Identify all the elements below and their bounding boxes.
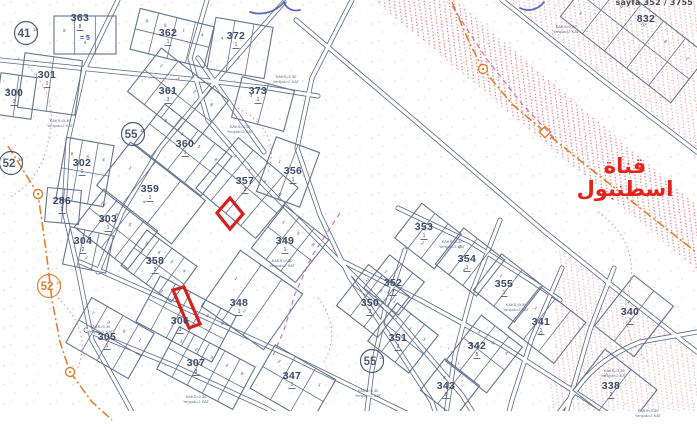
boundary-node-dot [482,68,484,70]
parcel-label-300: 300 [5,87,23,99]
parcel-sublot: 1 [292,177,295,183]
grid-marker-superscript: 10 [379,355,385,360]
zoning-note: KAKS=0.30Yençok=2 KAT [553,24,580,34]
parcel-sublot: 1 [291,382,294,388]
parcel-label-356: 356 [284,165,302,177]
zoning-note: KAKS=0.30Yençok=2 KAT [183,394,210,404]
parcel-label-362: 362 [159,27,177,39]
parcel-sublot: 1 [46,81,49,87]
parcel-label-372: 372 [227,30,245,42]
parcel-sublot: 3 [154,267,157,273]
parcel-label-307: 307 [187,357,205,369]
parcel-sublot: 2 [369,309,372,315]
parcel-sublot: 1 [235,42,238,48]
ink-annotation: = 5 [80,35,90,42]
parcel-label-286: 286 [53,195,71,207]
parcel-label-354: 354 [458,253,476,265]
parcel-sublot: 1 [149,195,152,201]
cadastral-map-page: 8465144211328133158864114148532563473612… [0,0,697,427]
parcel-label-348: 348 [230,297,248,309]
parcel-label-302: 302 [73,157,91,169]
parcel-sublot: 1 [184,150,187,156]
parcel-label-359: 359 [141,183,159,195]
parcel-sublot: 2 [82,247,85,253]
parcel-sublot: 1 [629,318,632,324]
boundary-node-dot [69,371,71,373]
zoning-note: KAKS=0.30Yençok=2 KAT [87,324,114,334]
parcel-sublot: 1 [423,233,426,239]
parcel-label-358: 358 [146,255,164,267]
parcel-label-352: 352 [384,277,402,289]
zoning-note: KAKS=0.30Yençok=2 KAT [269,258,296,268]
parcel-sublot: 2 [244,187,247,193]
parcel-sublot: 1 [466,265,469,271]
grid-marker-superscript: 10 [33,27,39,32]
parcel-label-343: 343 [437,380,455,392]
parcel-sublot: 8 [79,24,82,30]
parcel-sublot: 1 [107,225,110,231]
grid-marker-55: 55 [125,129,138,141]
parcel-label-355: 355 [495,278,513,290]
canal-name-label: قناة اسطنبول [552,155,697,201]
zoning-note: KAKS=0.30Yençok=2 KAT [439,239,466,249]
parcel-sublot: 3 [167,97,170,103]
parcel-label-363: 363 [71,12,89,24]
parcel-sublot: 1 [106,343,109,349]
parcel-label-347: 347 [283,370,301,382]
parcel-sublot: 2 [397,344,400,350]
parcel-sublot: 3 [13,99,16,105]
zoning-note: KAKS=0.30Yençok=2 KAT [227,124,254,134]
zoning-note: KAKS=0.30Yençok=2 KAT [355,388,382,398]
parcel-label-351: 351 [389,332,407,344]
grid-marker-55: 55 [364,356,377,368]
zoning-note: KAKS=0.30Yençok=2 KAT [635,408,662,418]
parcel-sublot: 1 [257,97,260,103]
parcel-sublot: 2 [610,392,613,398]
parcel-sublot: 6 [445,392,448,398]
parcel-sublot: 1 [167,39,170,45]
grid-marker-superscript: 10 [140,128,146,133]
parcel-label-340: 340 [621,306,639,318]
parcel-sublot: 1 [284,247,287,253]
grid-marker-52: 52 [41,281,54,293]
zoning-note: KAKS=0.30Yençok=2 KAT [47,118,74,128]
parcel-label-357: 357 [236,175,254,187]
parcel-sublot: 3 [179,327,182,333]
parcel-sublot: 5 [476,352,479,358]
parcel-sublot: 7 [392,289,395,295]
parcel-label-832: 832 [637,13,655,25]
parcel-label-342: 342 [468,340,486,352]
zoning-note: KAKS=0.30Yençok=2 KAT [601,368,628,378]
parcel-label-349: 349 [276,235,294,247]
grid-marker-41: 41 [18,28,31,40]
parcel-label-301: 301 [38,69,56,81]
grid-marker-superscript: 10 [18,157,24,162]
parcel-sublot: 1 [61,207,64,213]
parcel-label-361: 361 [159,85,177,97]
parcel-sublot: 3 [195,369,198,375]
zoning-note: KAKS=0.30Yençok=2 KAT [503,302,530,312]
parcel-sublot: 1 [540,328,543,334]
zoning-note: KAKS=0.30Yençok=2 KAT [273,74,300,84]
parcel-label-350: 350 [361,297,379,309]
parcel-label-303: 303 [99,213,117,225]
parcel-label-373: 373 [249,85,267,97]
parcel-label-353: 353 [415,221,433,233]
parcel-sublot: 1 [81,169,84,175]
map-canvas: 8465144211328133158864114148532563473612… [0,0,697,427]
parcel-label-338: 338 [602,380,620,392]
parcel-label-304: 304 [74,235,92,247]
boundary-node-dot [37,193,39,195]
grid-marker-superscript: 10 [56,280,62,285]
parcel-label-341: 341 [532,316,550,328]
parcel-label-360: 360 [176,138,194,150]
parcel-label-306: 306 [171,315,189,327]
grid-marker-52: 52 [3,158,16,170]
page-reference: sayfa 352 / 3755 [616,0,693,7]
parcel-sublot: 1 [238,309,241,315]
parcel-sublot: 1 [503,290,506,296]
